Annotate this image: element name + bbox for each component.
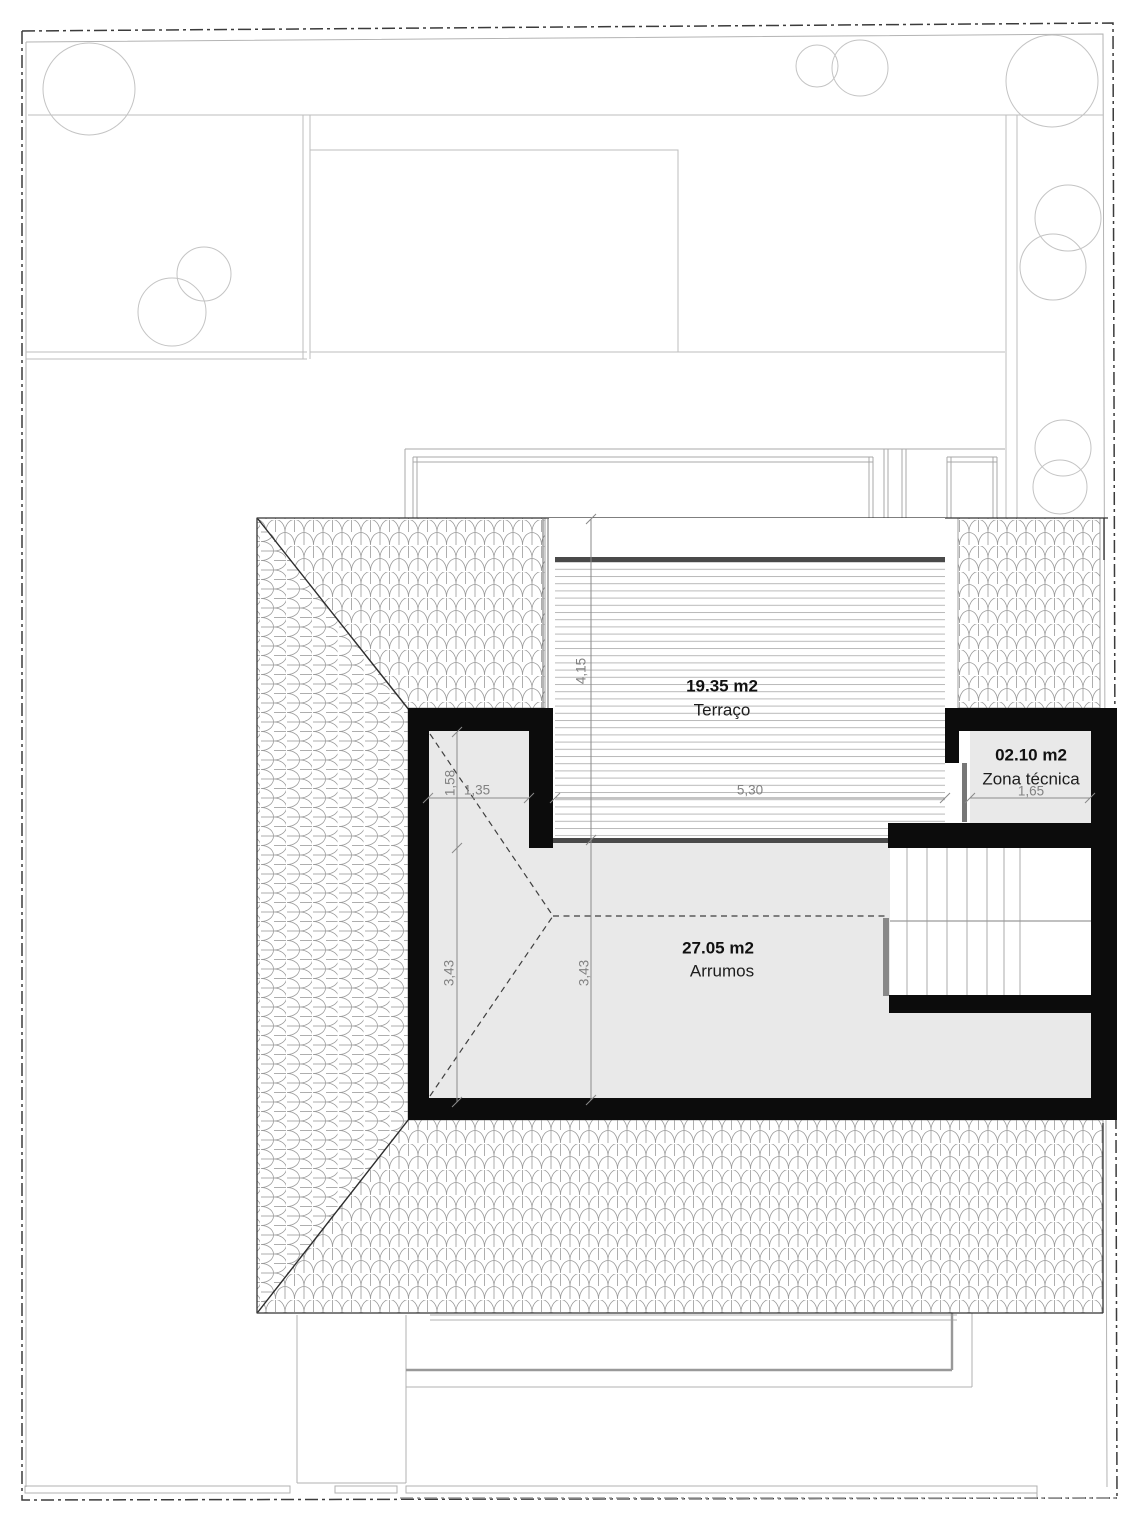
staircase	[883, 848, 1091, 996]
dim-arrumos-right: 3,43	[577, 960, 591, 986]
dim-terrace-depth: 4,15	[574, 658, 588, 684]
tree	[138, 278, 206, 346]
dim-arrumos-left: 3,43	[442, 960, 456, 986]
rear-garden-lines	[25, 1313, 1037, 1498]
arrumos-area-label: 27.05 m2	[682, 940, 754, 957]
dim-terrace-width: 5,30	[737, 783, 763, 797]
tree	[1033, 460, 1087, 514]
trees	[43, 35, 1101, 514]
arrumos-name-label: Arrumos	[690, 963, 754, 980]
tree	[1035, 185, 1101, 251]
deck-bottom-bar	[550, 838, 888, 843]
dim-niche-depth: 1,58	[443, 770, 457, 796]
zona-door-leaf	[962, 763, 967, 822]
stair-handrail	[883, 918, 889, 996]
building-outline	[310, 150, 678, 352]
lower-floor-walls	[405, 449, 1005, 518]
tree	[1006, 35, 1098, 127]
tree	[1020, 234, 1086, 300]
tree	[1035, 420, 1091, 476]
tree	[43, 43, 135, 135]
floor-plan-canvas: 19.35 m2 Terraço 27.05 m2 Arrumos 02.10 …	[0, 0, 1125, 1526]
zona-area-label: 02.10 m2	[995, 747, 1067, 764]
terrace-name-label: Terraço	[694, 702, 751, 719]
tree	[177, 247, 231, 301]
tree	[832, 40, 888, 96]
deck-top-bar	[555, 557, 945, 562]
dim-niche-width: 1,35	[464, 783, 490, 797]
plan-drawing	[0, 0, 1125, 1526]
dim-zona-width: 1,65	[1018, 784, 1044, 798]
roof-tile-right	[958, 518, 1100, 708]
terrace-area-label: 19.35 m2	[686, 678, 758, 695]
